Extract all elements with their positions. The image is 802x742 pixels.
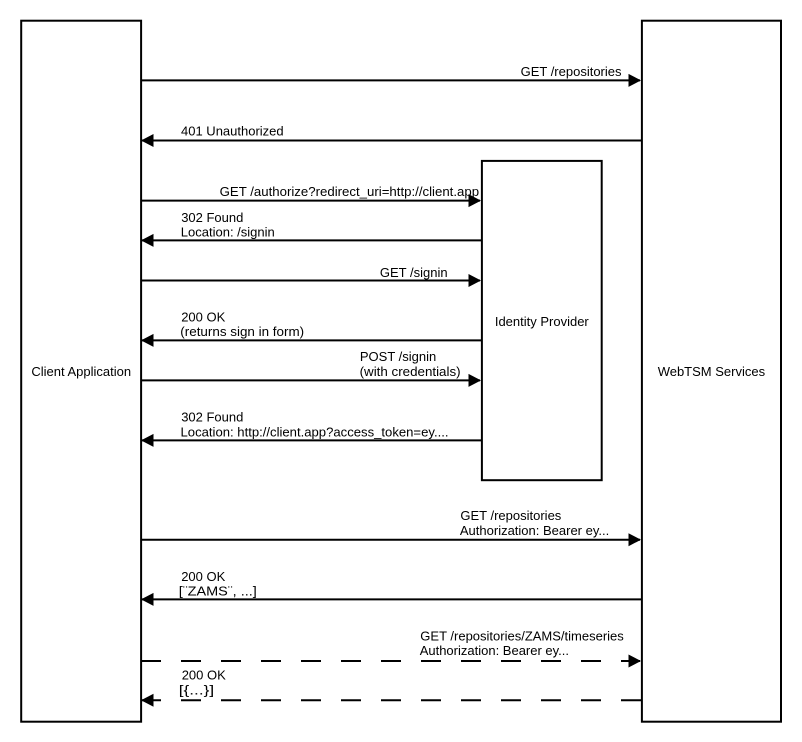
svg-text:(returns sign in form): (returns sign in form)	[180, 324, 304, 339]
svg-text:[{...}]: [{...}]	[179, 682, 214, 697]
svg-text:200 OK: 200 OK	[181, 309, 225, 324]
svg-text:GET /signin: GET /signin	[380, 265, 448, 280]
svg-text:Location: /signin: Location: /signin	[181, 225, 275, 240]
svg-text:Location: http://client.app?ac: Location: http://client.app?access_token…	[181, 424, 449, 439]
svg-text:200 OK: 200 OK	[181, 569, 225, 584]
svg-text:GET /repositories: GET /repositories	[460, 508, 561, 523]
svg-text:POST /signin: POST /signin	[360, 349, 436, 364]
svg-text:302 Found: 302 Found	[181, 410, 243, 425]
svg-text:302 Found: 302 Found	[181, 210, 243, 225]
svg-text:Authorization: Bearer ey...: Authorization: Bearer ey...	[420, 643, 569, 658]
svg-text:WebTSM Services: WebTSM Services	[658, 364, 766, 379]
svg-text:GET /repositories/ZAMS/timeser: GET /repositories/ZAMS/timeseries	[420, 629, 624, 644]
svg-text:200 OK: 200 OK	[182, 668, 226, 683]
svg-text:401 Unauthorized: 401 Unauthorized	[181, 124, 284, 139]
svg-text:(with credentials): (with credentials)	[360, 364, 461, 379]
svg-text:GET /authorize?redirect_uri=ht: GET /authorize?redirect_uri=http://clien…	[220, 184, 480, 199]
svg-text:Client Application: Client Application	[31, 364, 131, 379]
svg-text:GET /repositories: GET /repositories	[521, 64, 622, 79]
svg-text:Identity Provider: Identity Provider	[495, 314, 590, 329]
svg-text:Authorization: Bearer ey...: Authorization: Bearer ey...	[460, 523, 609, 538]
svg-text:[¨ZAMS¨, ...]: [¨ZAMS¨, ...]	[179, 584, 257, 599]
